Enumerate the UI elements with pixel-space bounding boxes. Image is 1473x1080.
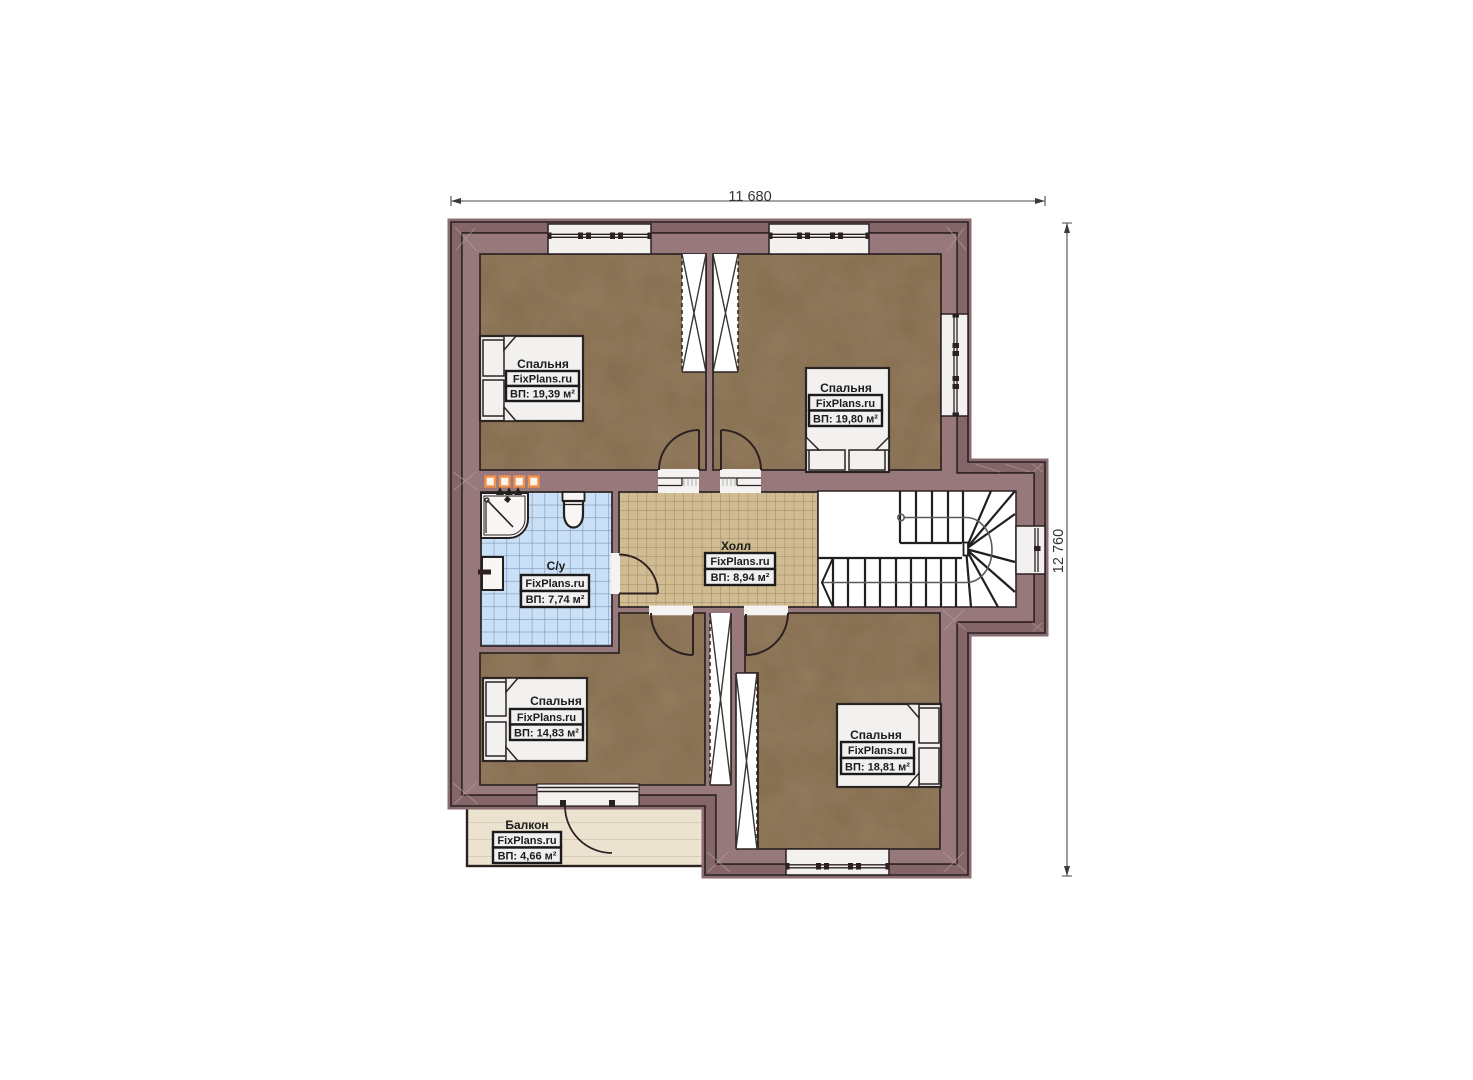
svg-text:ВП: 4,66 м²: ВП: 4,66 м² <box>498 851 557 863</box>
svg-text:ВП: 19,80 м²: ВП: 19,80 м² <box>813 414 878 426</box>
svg-text:Спальня: Спальня <box>530 694 582 708</box>
svg-text:FixPlans.ru: FixPlans.ru <box>525 578 584 590</box>
svg-text:Балкон: Балкон <box>505 818 548 832</box>
svg-text:FixPlans.ru: FixPlans.ru <box>513 374 572 386</box>
svg-text:FixPlans.ru: FixPlans.ru <box>497 835 556 847</box>
svg-text:FixPlans.ru: FixPlans.ru <box>848 745 907 757</box>
svg-text:11 680: 11 680 <box>728 189 771 205</box>
svg-text:ВП: 14,83 м²: ВП: 14,83 м² <box>514 728 579 740</box>
svg-text:Спальня: Спальня <box>517 357 569 371</box>
svg-text:ВП: 8,94 м²: ВП: 8,94 м² <box>711 572 770 584</box>
svg-text:ВП: 7,74 м²: ВП: 7,74 м² <box>526 594 585 606</box>
svg-text:С/у: С/у <box>547 559 566 573</box>
svg-text:ВП: 19,39 м²: ВП: 19,39 м² <box>510 389 575 401</box>
svg-text:FixPlans.ru: FixPlans.ru <box>816 398 875 410</box>
svg-text:Спальня: Спальня <box>820 381 872 395</box>
svg-text:Спальня: Спальня <box>850 728 902 742</box>
svg-text:FixPlans.ru: FixPlans.ru <box>710 556 769 568</box>
svg-text:ВП: 18,81 м²: ВП: 18,81 м² <box>845 762 910 774</box>
svg-text:FixPlans.ru: FixPlans.ru <box>517 712 576 724</box>
svg-text:12 760: 12 760 <box>1051 529 1067 573</box>
svg-text:Холл: Холл <box>721 539 751 553</box>
